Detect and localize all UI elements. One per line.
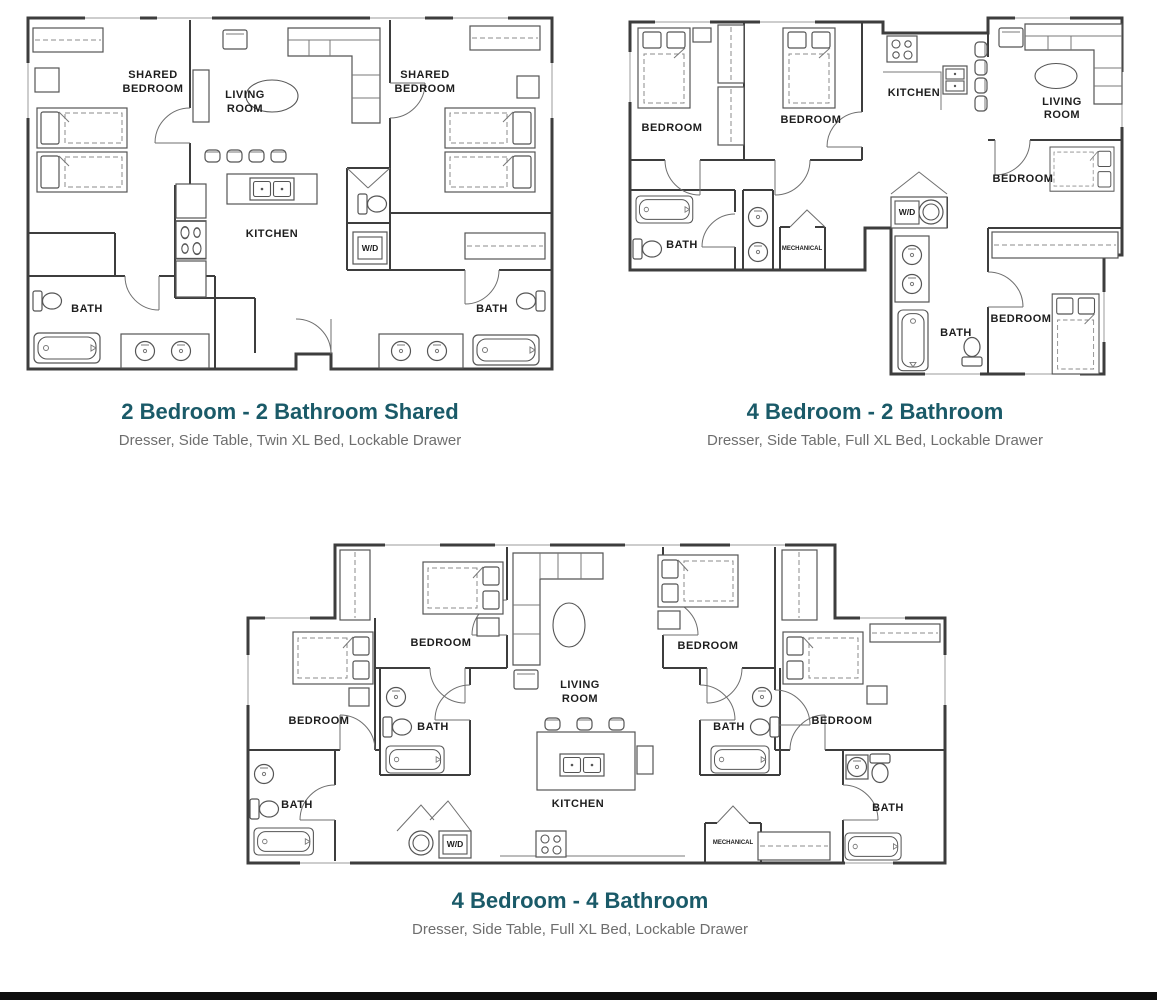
room-label-bedroom: BEDROOM <box>993 173 1054 185</box>
full-bed-icon <box>783 28 835 108</box>
toilet-icon <box>517 291 546 311</box>
plan-subtitle: Dresser, Side Table, Full XL Bed, Lockab… <box>225 921 935 938</box>
plan-subtitle: Dresser, Side Table, Twin XL Bed, Lockab… <box>25 432 555 449</box>
sink-icon <box>172 342 191 361</box>
room-label-bath: BATH <box>71 303 103 315</box>
full-bed-icon <box>638 28 690 108</box>
plan-title: 4 Bedroom - 2 Bathroom <box>625 399 1125 425</box>
plan-subtitle: Dresser, Side Table, Full XL Bed, Lockab… <box>625 432 1125 449</box>
floor-plan-2br-2ba-shared: SHARED BEDROOM LIVING ROOM SHARED BEDROO… <box>25 8 555 386</box>
stove-icon <box>176 221 206 259</box>
bathtub-icon <box>845 833 901 860</box>
counter <box>176 184 206 218</box>
sink-icon <box>749 208 768 227</box>
room-label-living-room: LIVING <box>560 679 600 691</box>
sink-icon <box>387 688 406 707</box>
twin-bed-icon <box>445 108 535 148</box>
toilet-icon <box>751 717 780 737</box>
stove-icon <box>536 831 566 857</box>
sink-icon <box>749 243 768 262</box>
room-label-wd: W/D <box>447 839 464 849</box>
armchair-icon <box>514 670 538 689</box>
coffee-table-icon <box>1035 64 1077 89</box>
twin-bed-icon <box>37 108 127 148</box>
toilet-icon <box>250 799 279 819</box>
room-label-shared-bedroom: BEDROOM <box>123 83 184 95</box>
sink-icon <box>428 342 447 361</box>
nightstand <box>477 618 499 636</box>
sink-icon <box>255 765 274 784</box>
plan-card-4br-4ba: BEDROOM BEDROOM BEDROOM BEDROOM LIVING R… <box>225 540 935 938</box>
room-label-bath: BATH <box>940 327 972 339</box>
footer-divider-bar <box>0 992 1157 1000</box>
room-label-living-room: ROOM <box>227 103 263 115</box>
nightstand <box>867 686 887 704</box>
floor-plan-4br-2ba: BEDROOM BEDROOM KITCHEN LIVING ROOM BEDR… <box>625 12 1125 377</box>
twin-bed-icon <box>37 152 127 192</box>
toilet-icon <box>383 717 412 737</box>
plan-title: 2 Bedroom - 2 Bathroom Shared <box>25 399 555 425</box>
room-label-living-room: LIVING <box>225 89 265 101</box>
nightstand <box>35 68 59 92</box>
room-label-bedroom: BEDROOM <box>991 313 1052 325</box>
nightstand <box>658 611 680 629</box>
room-label-bath: BATH <box>872 802 904 814</box>
room-label-kitchen: KITCHEN <box>888 87 940 99</box>
plan-card-2br-2ba-shared: SHARED BEDROOM LIVING ROOM SHARED BEDROO… <box>25 8 555 449</box>
room-label-bedroom: BEDROOM <box>289 715 350 727</box>
sink-icon <box>903 246 922 265</box>
bathtub-icon <box>34 333 100 363</box>
room-label-living-room: ROOM <box>1044 109 1080 121</box>
toilet-icon <box>33 291 62 311</box>
coffee-table-icon <box>553 603 585 647</box>
console-table <box>193 70 209 122</box>
room-label-bath: BATH <box>281 799 313 811</box>
room-label-bath: BATH <box>666 239 698 251</box>
bathtub-icon <box>386 746 444 773</box>
toilet-icon <box>358 194 387 214</box>
stool-icon <box>249 150 264 162</box>
sink-icon <box>392 342 411 361</box>
room-label-bedroom: BEDROOM <box>642 122 703 134</box>
room-label-shared-bedroom: BEDROOM <box>395 83 456 95</box>
full-bed-icon <box>1052 294 1099 374</box>
bathtub-icon <box>711 746 769 773</box>
stool-icon <box>975 78 987 93</box>
sink-counter <box>943 66 967 94</box>
nightstand <box>349 688 369 706</box>
full-bed-icon <box>658 555 738 607</box>
room-label-bedroom: BEDROOM <box>781 114 842 126</box>
stool-icon <box>975 42 987 57</box>
stool-icon <box>975 96 987 111</box>
room-label-bedroom: BEDROOM <box>678 640 739 652</box>
stool-icon <box>975 60 987 75</box>
bathtub-icon <box>254 828 313 855</box>
room-label-wd: W/D <box>899 207 916 217</box>
double-sink-icon <box>560 754 604 776</box>
bathtub-icon <box>636 196 693 223</box>
vanity-counter <box>121 334 209 368</box>
nightstand <box>693 28 711 42</box>
stool-icon <box>227 150 242 162</box>
room-label-kitchen: KITCHEN <box>552 798 604 810</box>
armchair-icon <box>223 30 247 49</box>
toilet-icon <box>633 239 662 259</box>
stove-icon <box>887 36 917 62</box>
washer-icon <box>409 831 433 855</box>
full-bed-icon <box>423 562 503 614</box>
stool-icon <box>271 150 286 162</box>
sink-icon <box>848 758 867 777</box>
room-label-mechanical: MECHANICAL <box>782 246 823 252</box>
appliance <box>637 746 653 774</box>
toilet-icon <box>962 338 982 367</box>
full-bed-icon <box>293 632 373 684</box>
room-label-bath: BATH <box>713 721 745 733</box>
sink-icon <box>753 688 772 707</box>
stool-icon <box>205 150 220 162</box>
room-label-shared-bedroom: SHARED <box>128 69 177 81</box>
counter <box>176 261 206 297</box>
room-label-bath: BATH <box>417 721 449 733</box>
room-label-living-room: LIVING <box>1042 96 1082 108</box>
full-bed-icon <box>783 632 863 684</box>
room-label-bath: BATH <box>476 303 508 315</box>
sectional-sofa-icon <box>1025 24 1122 104</box>
room-label-wd: W/D <box>362 243 379 253</box>
washer-icon <box>919 200 943 224</box>
sink-icon <box>903 275 922 294</box>
room-label-kitchen: KITCHEN <box>246 228 298 240</box>
floor-plan-4br-4ba: BEDROOM BEDROOM BEDROOM BEDROOM LIVING R… <box>245 540 955 875</box>
room-label-shared-bedroom: SHARED <box>400 69 449 81</box>
room-label-bedroom: BEDROOM <box>812 715 873 727</box>
room-label-bedroom: BEDROOM <box>411 637 472 649</box>
plan-title: 4 Bedroom - 4 Bathroom <box>225 888 935 914</box>
stool-icon <box>577 718 592 730</box>
stool-icon <box>609 718 624 730</box>
plan-card-4br-2ba: BEDROOM BEDROOM KITCHEN LIVING ROOM BEDR… <box>625 12 1125 449</box>
full-bed-icon <box>1050 147 1114 191</box>
nightstand <box>517 76 539 98</box>
room-label-living-room: ROOM <box>562 693 598 705</box>
bathtub-icon <box>473 335 539 365</box>
toilet-icon <box>870 754 890 783</box>
double-sink-icon <box>250 178 294 200</box>
stool-icon <box>545 718 560 730</box>
sectional-sofa-icon <box>288 28 380 123</box>
armchair-icon <box>999 28 1023 47</box>
bathtub-icon <box>898 310 928 371</box>
room-label-mechanical: MECHANICAL <box>713 840 754 846</box>
twin-bed-icon <box>445 152 535 192</box>
sink-icon <box>136 342 155 361</box>
